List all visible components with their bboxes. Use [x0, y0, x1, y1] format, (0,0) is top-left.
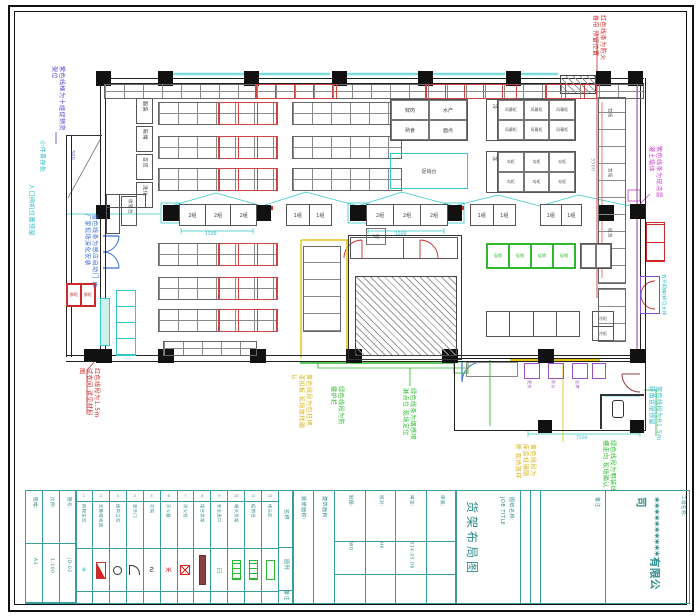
legend-name-cell: 单开门: [127, 502, 143, 549]
dim-text: 4500: [660, 284, 666, 304]
freezer-cell: 岛柜: [549, 172, 575, 192]
cooler-cell: 风幕柜: [549, 100, 575, 120]
gondola-row: [292, 136, 402, 159]
promo-cell: 促销: [531, 244, 553, 268]
legend-note-cell: [144, 592, 160, 603]
checkout-pair: 1组 1组: [470, 204, 516, 226]
entry-vestibule: [640, 276, 660, 314]
field-label: 校对:: [377, 495, 383, 537]
legend-name-cell: 组合货架: [194, 502, 210, 549]
legend-symbol-cell: [194, 549, 210, 592]
legend-column: 1购物车位✳: [76, 491, 92, 603]
green-rack-icon: [232, 560, 241, 580]
annotation-fitting-room: 红色线段为1.5m试衣间 详见材料图: [82, 368, 100, 420]
promo-island: 促销台: [390, 153, 468, 189]
column: [538, 349, 554, 363]
legend-name-cell: 购物车位: [76, 502, 92, 549]
small-black-table: [580, 243, 612, 269]
cooler-table: 冷 风幕柜 风幕柜 风幕柜 风幕柜 风幕柜 风幕柜: [486, 99, 576, 141]
legend-header-column: 名称图例备注: [278, 491, 293, 603]
legend-symbol-cell: [93, 549, 109, 592]
annex-purple-unit: [548, 363, 564, 379]
shelf-run-icon: [199, 555, 206, 585]
cooler-head: 冷: [487, 100, 498, 140]
legend-index: 7: [178, 491, 194, 502]
legend-header-symbol: 图例: [279, 548, 293, 591]
legend-column: 8组合货架: [193, 491, 210, 603]
fridge-cell: 冷柜: [593, 312, 613, 327]
job-title-label: 图纸名称:: [508, 497, 514, 557]
cashier-label-box: 收银台: [121, 196, 137, 226]
legend-index: 3: [110, 491, 126, 502]
legend-name-cell: 衣钩: [144, 502, 160, 549]
checkout-counter-L: [106, 194, 120, 234]
gondola-row-red: [218, 243, 278, 266]
legend-column: 6灭火器Ж: [160, 491, 177, 603]
checkout-cell: 2组: [205, 205, 231, 225]
exit-icon: ◫: [217, 567, 223, 574]
annex-room-label: 办公: [551, 380, 556, 396]
annotation-promo-racks: 紫色线框为十组促销货架位: [50, 66, 65, 134]
freezer-cell: 岛柜: [524, 172, 550, 192]
checkout-cell: 1组: [493, 205, 516, 225]
job-title-sub: JOB TITLE: [499, 497, 505, 557]
legend-index: 11: [245, 491, 261, 502]
wc-fixture: [612, 400, 624, 418]
mini-value: JD-02: [65, 558, 71, 588]
checkout-pair: 1组 1组: [540, 204, 582, 226]
mini-value: 1:100: [48, 558, 54, 588]
legend-column: 10端头货架: [227, 491, 244, 603]
checkout-cell: 1组: [287, 205, 309, 225]
mini-label: 图号:: [65, 497, 71, 537]
project-label: 工程名称:: [679, 495, 685, 535]
annotation-auto-door: 蓝色线条为感应自动门 由厂家现场深化安装: [78, 214, 98, 294]
checkout-cells: 2组 2组 2组: [366, 204, 448, 226]
cooler-cell: 风幕柜: [524, 100, 550, 120]
promo-cell: 促销: [553, 244, 575, 268]
legend-name-cell: 堆头区: [262, 502, 278, 549]
column: [538, 420, 552, 433]
freezer-table: 冻 岛柜 岛柜 岛柜 岛柜 岛柜 岛柜: [486, 151, 576, 193]
gondola-row: [292, 102, 402, 125]
wall-shelf-row: [163, 341, 257, 356]
gondola-row-red: [218, 277, 278, 300]
annotation-guard-rail: 绿色线段为防撞护栏: [332, 386, 344, 430]
legend-column: 7消火栓: [177, 491, 194, 603]
legend-name: 安全出口: [217, 504, 222, 546]
perimeter-shelf-red: [545, 84, 597, 99]
fresh-cell: 水产: [429, 100, 467, 120]
field-label: 制图:: [347, 495, 353, 537]
mini-label: 图幅:: [31, 497, 37, 537]
legend-index: 2: [93, 491, 109, 502]
counter-cell: [556, 312, 579, 336]
fresh-cell: 熟食: [391, 120, 429, 140]
legend-index: 12: [262, 491, 278, 502]
field-value: DWG: [347, 542, 353, 575]
checkout-register-block: [163, 205, 179, 221]
legend-symbol-cell: [110, 549, 126, 592]
legend-index: 6: [161, 491, 177, 502]
freezer-head: 冻: [487, 152, 498, 192]
annex-fixture-band: [466, 362, 518, 377]
legend-note-cell: [110, 592, 126, 603]
titleblock-fields: 装修面积: 建筑面积: 制图: DWG 校对: CHK 审定: 2014.05.…: [292, 490, 457, 604]
checkout-cell: 2组: [367, 205, 393, 225]
cooler-cell: 风幕柜: [549, 120, 575, 140]
checkout-cells: 2组 2组 2组: [179, 204, 257, 226]
legend-index: 5: [144, 491, 160, 502]
legend-name-cell: 端头货架: [228, 502, 244, 549]
gondola-row: [292, 168, 402, 191]
legend-note-cell: [245, 592, 261, 603]
gondola-stack: [303, 246, 341, 332]
column: [630, 204, 645, 219]
mini-value: A3: [31, 558, 37, 588]
legend-note-cell: [76, 592, 92, 603]
note-label: 备注:: [594, 497, 600, 527]
checkout-register-block: [350, 205, 366, 221]
mini-info-table: 图幅: A3 比例: 1:100 图号: JD-02: [25, 490, 77, 604]
legend-index: 1: [76, 491, 92, 502]
promo-cell: 促销: [487, 244, 509, 268]
counter-cell: [509, 312, 532, 336]
legend-name: 促销台: [251, 504, 256, 546]
green-rack-icon: [266, 560, 275, 580]
fridge-cell: 冷柜: [593, 327, 613, 341]
mini-label: 比例:: [48, 497, 54, 537]
legend-name-cell: 无障碍坡道: [93, 502, 109, 549]
legend-name: 消火栓: [183, 504, 188, 546]
legend-note-cell: [194, 592, 210, 603]
checkout-cell: 1组: [309, 205, 332, 225]
legend-symbol-cell: ✳: [76, 549, 92, 592]
legend-column: 3结构立柱: [109, 491, 126, 603]
perimeter-shelf-red: [255, 84, 337, 99]
rack-label-box: 鞋帽: [136, 126, 153, 152]
legend-symbol-cell: [262, 549, 278, 592]
legend-symbol-cell: Ƨ: [144, 549, 160, 592]
legend-note-cell: [211, 592, 227, 603]
rack-label-box: 服装: [136, 98, 153, 124]
legend-note-cell: [127, 592, 143, 603]
checkout-cell: 2组: [180, 205, 205, 225]
legend-index: 4: [127, 491, 143, 502]
checkout-register-block: [255, 205, 271, 221]
legend-column: 11促销台: [244, 491, 261, 603]
annex-purple-unit: [592, 363, 606, 379]
legend-name: 无障碍坡道: [98, 504, 103, 546]
legend-column: 4单开门: [126, 491, 143, 603]
legend-header-name: 名称: [279, 491, 293, 548]
field-label: 审核:: [438, 495, 444, 537]
gondola-row-red: [218, 102, 278, 125]
legend-name: 堆头区: [267, 504, 272, 546]
legend-column: 5衣钩Ƨ: [143, 491, 160, 603]
gondola-row-red: [218, 168, 278, 191]
annex-purple-unit: [524, 363, 540, 379]
legend-name: 单开门: [132, 504, 137, 546]
legend-symbol-cell: [245, 549, 261, 592]
promo-island-label: 促销台: [421, 168, 436, 175]
cart-icon: ✳: [81, 566, 87, 574]
cyan-shelf-stack: [116, 290, 136, 356]
freezer-cell: 岛柜: [524, 152, 550, 172]
dim-text: 3500: [589, 158, 595, 180]
gondola-row-red: [218, 136, 278, 159]
company-name: **********有限公司: [634, 497, 660, 599]
checkout-cell: 2组: [230, 205, 256, 225]
spacer-cell: [531, 491, 541, 603]
green-rack-icon: [249, 560, 258, 580]
legend-note-cell: [262, 592, 278, 603]
titleblock-main: 图纸名称: JOB TITLE 货架布局图 备注: 工程名称: ********…: [455, 490, 690, 604]
legend-index: 10: [228, 491, 244, 502]
legend-note-cell: [228, 592, 244, 603]
column: [630, 349, 646, 363]
annotation-concrete-wall: 紫色线条为现浇混凝土墙体: [646, 146, 662, 202]
legend-note-cell: [93, 592, 109, 603]
field-value: CHK: [377, 542, 383, 575]
checkout-cell: 2组: [420, 205, 447, 225]
legend-note-cell: [178, 592, 194, 603]
legend-header-note: 备注: [279, 591, 293, 603]
annotation-column-clad: 黄色线段为包柱烤漆扣板 现场放样确认: [294, 374, 312, 430]
area-label: 建筑面积:: [321, 496, 327, 596]
dim-text: 1500: [395, 232, 406, 237]
drawing-sheet: 服装 鞋帽 百货 洗化 鲜肉 水产 熟食 面点 冷 风幕柜 风幕柜 风幕柜 风幕…: [0, 0, 700, 616]
rack-label-box: 百货: [136, 154, 153, 180]
legend-symbol-cell: [127, 549, 143, 592]
cell: [596, 244, 611, 268]
dim-text: 300: [69, 150, 75, 168]
annotation-locker: 小件寄存处: [38, 140, 46, 190]
rack-label: 鞋帽: [141, 129, 147, 149]
legend-symbol-cell: ◫: [211, 549, 227, 592]
perimeter-shelf-red: [425, 84, 517, 99]
annex-purple-unit: [572, 363, 588, 379]
freezer-cell: 岛柜: [498, 172, 524, 192]
legend-name-cell: 安全出口: [211, 502, 227, 549]
rack-label: 服装: [141, 101, 147, 121]
cell: [581, 244, 596, 268]
annotation-fire-shutter: 红色线条为防火卷帘 预留位置: [588, 15, 606, 61]
cooler-cell: 风幕柜: [498, 100, 524, 120]
legend-index: 9: [211, 491, 227, 502]
legend-name-cell: 结构立柱: [110, 502, 126, 549]
annotation-corner-rack: 蓝色线段为R1.5m转角货架预留: [648, 386, 662, 444]
job-title: 货架布局图: [464, 501, 479, 597]
annotation-cable-tray: 绿色线段为明装线槽走向 现场确认: [598, 440, 616, 494]
stair-hatch: [355, 276, 457, 356]
job-title-cell: 图纸名称: JOB TITLE 货架布局图: [456, 491, 521, 603]
legend-name: 衣钩: [149, 504, 154, 546]
company-cell: 工程名称: **********有限公司: [606, 491, 689, 603]
legend-name: 组合货架: [200, 504, 205, 546]
fresh-cell: 鲜肉: [391, 100, 429, 120]
area-label: 装修面积:: [300, 496, 306, 596]
counter-seg-label: 背柜: [606, 108, 612, 130]
entrance-mat: [84, 349, 106, 361]
annex-wc-wall-v: [600, 394, 602, 429]
counter-seg-label: 背柜: [606, 168, 612, 190]
legend-name-cell: 促销台: [245, 502, 261, 549]
checkout-cell: 1组: [561, 205, 582, 225]
annex-wc-wall: [600, 394, 644, 396]
checkout-cell: 1组: [471, 205, 493, 225]
counter-cell: [533, 312, 556, 336]
fresh-table: 鲜肉 水产 熟食 面点: [390, 99, 468, 141]
field-value: 2014.05.06: [408, 542, 414, 575]
checkout-cell: 2组: [393, 205, 420, 225]
field-label: 审定:: [408, 495, 414, 537]
fridge-pair: 冷柜 冷柜: [592, 311, 614, 341]
promo-cell: 促销: [509, 244, 531, 268]
legend-index: 8: [194, 491, 210, 502]
legend-name-cell: 消火栓: [178, 502, 194, 549]
note-cell: 备注:: [541, 491, 606, 603]
legend-column: 2无障碍坡道: [92, 491, 109, 603]
dim-text: 1500: [205, 232, 216, 237]
annotation-gates: 入口闸机位置预留: [27, 184, 35, 238]
extinguisher-icon: Ж: [165, 567, 171, 574]
legend-column: 9安全出口◫: [210, 491, 227, 603]
left-annex-top-line: [66, 135, 102, 136]
long-counter: [486, 311, 580, 337]
red-wall-units: [646, 222, 665, 262]
column: [630, 420, 644, 433]
gondola-row-red: [218, 309, 278, 332]
counter-cell: [487, 312, 509, 336]
legend-name: 端头货架: [234, 504, 239, 546]
legend-name-cell: 灭火器: [161, 502, 177, 549]
checkout-pair: 1组 1组: [286, 204, 332, 226]
fresh-cell: 面点: [429, 120, 467, 140]
legend-name: 购物车位: [81, 504, 86, 546]
legend-table: 1购物车位✳2无障碍坡道3结构立柱4单开门5衣钩Ƨ6灭火器Ж7消火栓8组合货架9…: [75, 490, 294, 604]
legend-name: 结构立柱: [115, 504, 120, 546]
legend-symbol-cell: Ж: [161, 549, 177, 592]
annex-room-label: 更衣: [527, 380, 532, 396]
left-annex-wall: [66, 135, 72, 357]
rack-label: 百货: [141, 157, 147, 177]
freezer-strip: [100, 298, 110, 346]
legend-column: 12堆头区: [261, 491, 278, 603]
cooler-cell: 风幕柜: [498, 120, 524, 140]
freezer-cell: 岛柜: [549, 152, 575, 172]
legend-symbol-cell: [178, 549, 194, 592]
stair-top-cells: [350, 237, 458, 259]
freezer-cell: 岛柜: [498, 152, 524, 172]
hydrant-icon: [180, 565, 190, 575]
annex-room-label: 仓库: [575, 380, 580, 396]
spacer-cell: [521, 491, 531, 603]
legend-symbol-cell: [228, 549, 244, 592]
legend-note-cell: [161, 592, 177, 603]
annotation-partition: 黄色线段为库房轻钢隔断 现场放样: [518, 444, 536, 480]
checkout-cell: 1组: [541, 205, 561, 225]
hook-icon: Ƨ: [149, 566, 153, 574]
cashier-label: 收银台: [126, 199, 132, 223]
dim-text: 7500: [576, 436, 587, 441]
column-icon: [113, 566, 122, 575]
door-icon: [129, 565, 140, 575]
cooler-cell: 风幕柜: [524, 120, 550, 140]
green-promo-table: 促销 促销 促销 促销: [486, 243, 576, 269]
annotation-sprinkler: 绿色线条为烟感喷淋点位 现场定位: [398, 388, 416, 440]
legend-name: 灭火器: [166, 504, 171, 546]
checkout-register-block: [446, 205, 462, 221]
ramp-icon: [96, 562, 106, 579]
